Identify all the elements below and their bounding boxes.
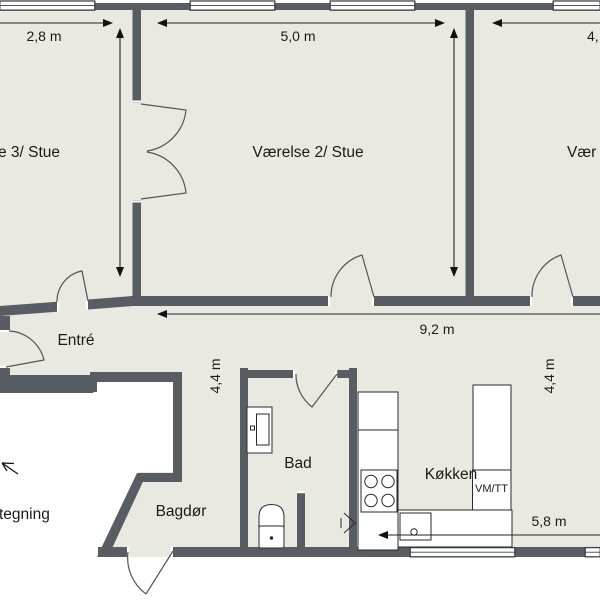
wall-bath-left	[240, 368, 248, 553]
dim-label-right-vertical: 4,4 m	[541, 358, 557, 393]
wall-partition-left-upper	[133, 10, 142, 103]
wall-hallway-2	[374, 296, 532, 306]
room-label-bad: Bad	[284, 455, 312, 472]
room-label-vaerelse1: Vær	[567, 144, 596, 161]
floor-plan-canvas: e 3/ Stue Værelse 2/ Stue Vær Entré Bad …	[0, 0, 600, 600]
window-top-1	[0, 1, 95, 11]
wall-bottom-1	[98, 547, 127, 557]
room-label-entre: Entré	[57, 332, 94, 349]
wall-top-1	[95, 3, 190, 10]
wall-partition-right	[466, 10, 475, 297]
wall-bottom-3	[515, 547, 585, 557]
annotation-arrow	[2, 463, 18, 474]
room-label-koekken: Køkken	[425, 466, 478, 483]
toilet	[259, 505, 284, 549]
wall-bath-top-left	[240, 370, 295, 378]
window-top-4	[553, 1, 600, 11]
wall-hallway-1	[130, 296, 330, 306]
room-label-vaerelse2: Værelse 2/ Stue	[252, 144, 363, 161]
wall-entre-bottom	[0, 375, 93, 393]
kitchen-sink-drain	[411, 529, 417, 535]
appliance-label-vmtt: VM/TT	[475, 483, 508, 495]
wall-top-3	[415, 3, 553, 10]
room-label-vaerelse3: e 3/ Stue	[0, 144, 60, 161]
dim-label-left-vertical: 4,4 m	[207, 358, 223, 393]
wall-entre-left-upper	[0, 316, 10, 332]
dim-label-top-middle: 5,0 m	[280, 28, 315, 44]
wall-notch-right	[173, 372, 182, 482]
wall-hallway-3	[573, 296, 600, 306]
wall-notch-left-stub	[90, 382, 97, 392]
kitchen-counter-bottom	[398, 510, 512, 547]
bath-sink	[247, 407, 272, 453]
wall-notch-top	[90, 372, 182, 382]
annotation-label: tegning	[0, 506, 50, 523]
window-bottom-2	[585, 547, 600, 557]
window-bottom-1	[410, 547, 515, 557]
window-top-2	[190, 1, 275, 11]
dim-label-top-left: 2,8 m	[26, 28, 61, 44]
door-back-exit	[128, 551, 173, 594]
floor-plan-page: e 3/ Stue Værelse 2/ Stue Vær Entré Bad …	[0, 0, 600, 600]
wall-bath-stub	[297, 493, 305, 550]
dim-label-kitchen: 5,8 m	[531, 513, 566, 529]
dim-label-hallway: 9,2 m	[419, 321, 454, 337]
room-label-bagdoer: Bagdør	[156, 503, 207, 520]
wall-partition-left-lower	[133, 200, 142, 297]
window-top-3	[330, 1, 415, 11]
stove	[361, 470, 397, 512]
dim-label-top-right: 4,	[587, 28, 599, 44]
wall-top-2	[275, 3, 330, 10]
